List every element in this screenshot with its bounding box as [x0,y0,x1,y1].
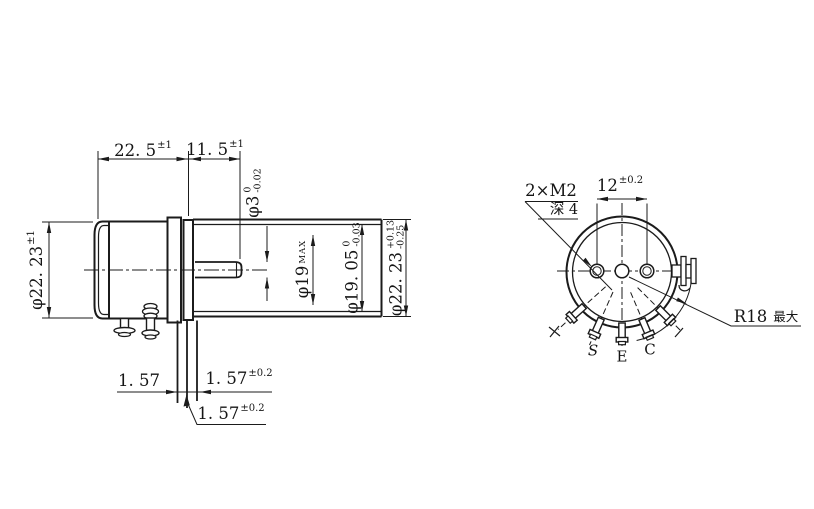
pin-label-s: S [588,344,598,359]
terminal-lug-s [587,316,606,341]
dim-hole-spacing: 12±0.2 [597,178,643,195]
pin-label-c: C [644,343,655,358]
dim-body-length: 22. 5±1 [114,143,172,160]
dim-shaft-diameter: φ3 0-0.02 [244,168,265,217]
dim-lead-pitch-left: 1. 57 [118,373,160,390]
dim-inner-diameter: φ19. 05 0-0.03 [343,222,364,313]
dim-cap-diameter: φ22. 23±1 [29,230,46,310]
engineering-drawing: 22. 5±1 11. 5±1 φ3 0-0.02 φ19MAX φ19. 05… [0,0,814,509]
thread-note-size: 2×M2 [525,183,577,200]
pin-label-e: E [617,350,628,365]
dim-lead-pitch-right: 1. 57±0.2 [205,371,272,388]
thread-note-depth: 深 4 [550,203,578,218]
dim-outer-diameter: φ22. 23 +0.13-0.25 [387,220,408,316]
dim-shaft-length: 11. 5±1 [186,142,244,159]
dim-bore-diameter: φ19MAX [295,240,312,298]
dim-lead-pitch-middle: 1. 57±0.2 [197,406,264,423]
radius-note: R18 最大 [734,309,798,326]
